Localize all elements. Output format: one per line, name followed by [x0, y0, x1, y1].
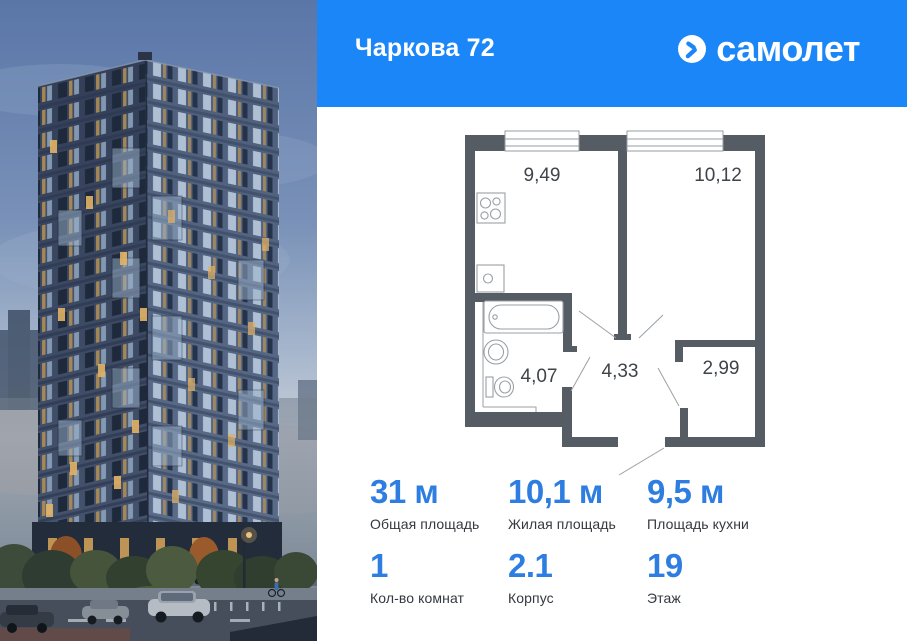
card-header: Чаркова 72 самолет: [317, 0, 907, 107]
stat-living-area: 10,1 м Жилая площадь: [508, 477, 647, 532]
stat-label: Общая площадь: [370, 516, 508, 532]
stat-value: 19: [647, 551, 890, 581]
room-area-living: 10,12: [694, 165, 742, 186]
samolet-logo-icon: [678, 35, 706, 63]
info-panel: Чаркова 72 самолет: [317, 0, 907, 641]
stat-label: Кол-во комнат: [370, 590, 508, 606]
stat-value: 2.1: [508, 551, 647, 581]
building-photo: [0, 0, 317, 641]
apartment-listing-card[interactable]: Чаркова 72 самолет: [0, 0, 907, 641]
stat-value: 9,5 м: [647, 477, 890, 507]
stat-value: 1: [370, 551, 508, 581]
stat-floor: 19 Этаж: [647, 551, 890, 606]
room-area-hallway: 4,33: [602, 361, 639, 382]
stats-secondary: 1 Кол-во комнат 2.1 Корпус 19 Этаж: [370, 551, 890, 606]
stat-label: Корпус: [508, 590, 647, 606]
stat-label: Площадь кухни: [647, 516, 890, 532]
stat-rooms-count: 1 Кол-во комнат: [370, 551, 508, 606]
stat-value: 31 м: [370, 477, 508, 507]
building-illustration: [0, 0, 317, 641]
toilet-icon: [486, 377, 493, 397]
room-area-kitchen: 9,49: [524, 165, 561, 186]
stat-label: Жилая площадь: [508, 516, 647, 532]
project-title: Чаркова 72: [355, 34, 495, 63]
stat-total-area: 31 м Общая площадь: [370, 477, 508, 532]
stat-value: 10,1 м: [508, 477, 647, 507]
brand-logo: самолет: [678, 28, 860, 70]
floor-plan: 9,49 10,12 4,07 4,33 2,99: [455, 125, 775, 481]
brand-name: самолет: [716, 28, 860, 70]
stove-icon: [477, 193, 505, 223]
stat-label: Этаж: [647, 590, 890, 606]
stat-building: 2.1 Корпус: [508, 551, 647, 606]
room-area-closet: 2,99: [703, 358, 740, 379]
room-area-bathroom: 4,07: [521, 366, 558, 387]
stat-kitchen-area: 9,5 м Площадь кухни: [647, 477, 890, 532]
stats-primary: 31 м Общая площадь 10,1 м Жилая площадь …: [370, 477, 890, 532]
